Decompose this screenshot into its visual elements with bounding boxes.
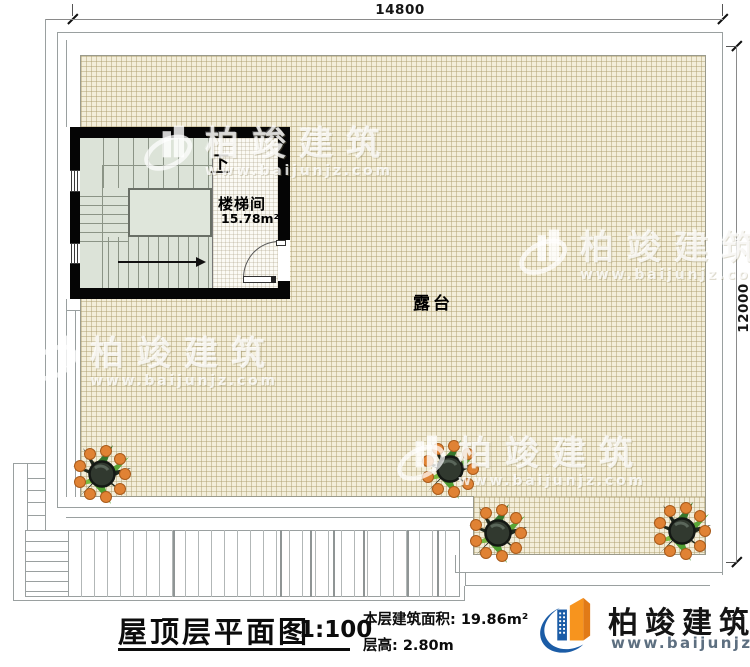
floor-area-text: 本层建筑面积: 19.86m²: [363, 608, 528, 629]
plan-line: [81, 530, 82, 597]
plan-line: [380, 530, 381, 597]
plan-line: [27, 463, 28, 530]
plan-line: [185, 530, 186, 597]
window-frame-line: [74, 244, 75, 263]
plan-line: [27, 515, 45, 516]
title-underline: [118, 648, 350, 651]
plan-line: [437, 530, 439, 597]
plan-line: [108, 237, 109, 288]
plan-line: [465, 585, 710, 586]
plan-line: [455, 555, 456, 573]
plan-line: [68, 530, 69, 597]
window-frame-line: [77, 244, 78, 263]
plan-line: [726, 562, 738, 563]
drawing-title: 屋顶层平面图: [118, 609, 310, 651]
potted-plant: [650, 498, 714, 562]
plan-line: [178, 138, 179, 188]
plan-line: [25, 541, 68, 542]
plan-line: [146, 530, 147, 597]
plan-line: [363, 530, 365, 597]
plan-line: [25, 530, 460, 531]
plan-line: [208, 237, 209, 288]
plan-line: [419, 530, 420, 597]
plan-line: [208, 138, 209, 188]
stair-direction-arrow: [196, 257, 206, 267]
plan-line: [310, 530, 312, 597]
plan-line: [393, 530, 394, 597]
plan-line: [173, 530, 175, 597]
plan-line: [133, 138, 134, 188]
plan-line: [45, 19, 723, 20]
drawing-scale: 1:100: [299, 617, 372, 643]
plan-line: [302, 530, 303, 597]
plan-line: [25, 561, 68, 562]
window: [70, 243, 80, 264]
plan-line: [57, 507, 473, 508]
dimension-line-right: [736, 46, 737, 563]
potted-plant: [418, 436, 482, 500]
plan-line: [159, 530, 160, 597]
plan-line: [94, 530, 95, 597]
plan-line: [102, 165, 212, 166]
plan-line: [722, 32, 723, 575]
door-frame: [276, 240, 286, 246]
plan-line: [118, 138, 119, 188]
plan-line: [289, 530, 290, 597]
plan-line: [25, 596, 460, 597]
plan-line: [354, 530, 355, 597]
plan-line: [333, 530, 335, 597]
stairwell: 下楼梯间15.78m²: [70, 127, 290, 299]
brand-website-text: www.baijunjz.com: [611, 634, 750, 652]
plan-line: [133, 530, 134, 597]
plan-line: [13, 463, 14, 601]
plan-line: [80, 496, 474, 497]
plan-line: [25, 581, 68, 582]
plan-line: [66, 299, 67, 497]
plan-line: [455, 572, 723, 573]
window-frame-line: [74, 171, 75, 191]
plan-line: [66, 517, 473, 518]
stair-direction-label: 下: [212, 148, 229, 173]
dimension-top-label: 14800: [370, 2, 430, 18]
brand-logo-icon: [534, 596, 596, 654]
plan-line: [103, 138, 104, 188]
plan-line: [13, 600, 465, 601]
plan-line: [27, 490, 45, 491]
plan-line: [722, 4, 723, 16]
plan-line: [80, 232, 128, 233]
plan-line: [25, 591, 68, 592]
plan-line: [107, 530, 108, 597]
plan-line: [118, 261, 196, 263]
plan-line: [45, 19, 46, 463]
plan-line: [263, 530, 264, 597]
plan-line: [57, 32, 723, 33]
potted-plant: [466, 500, 530, 564]
stairwell-area-label: 15.78m²: [221, 211, 279, 226]
stair-landing: [128, 188, 212, 237]
plan-line: [80, 196, 128, 197]
plan-line: [102, 165, 103, 288]
plan-line: [80, 214, 128, 215]
plan-line: [445, 530, 446, 597]
window-frame-line: [71, 244, 72, 263]
plan-line: [120, 530, 121, 597]
plan-line: [80, 241, 128, 242]
plan-line: [328, 530, 329, 597]
plan-line: [72, 4, 73, 16]
floor-plan-canvas: 14800 12000 露台 下楼梯间15.78m²: [0, 0, 750, 667]
plan-line: [276, 530, 277, 597]
plan-line: [163, 138, 164, 188]
plan-line: [66, 40, 67, 127]
plan-line: [25, 551, 68, 552]
door-hinge: [271, 276, 276, 283]
floor-height-text: 层高: 2.80m: [363, 634, 454, 655]
plan-line: [57, 32, 58, 508]
plan-line: [193, 138, 194, 188]
plan-line: [211, 530, 212, 597]
plan-line: [224, 530, 225, 597]
plan-line: [367, 530, 368, 597]
plan-line: [432, 530, 433, 597]
plan-line: [80, 223, 128, 224]
plan-line: [13, 463, 45, 464]
plan-line: [250, 530, 251, 597]
window-frame-line: [77, 171, 78, 191]
plan-line: [27, 478, 45, 479]
plan-line: [237, 530, 238, 597]
potted-plant: [70, 441, 134, 505]
plan-line: [726, 46, 738, 47]
plan-line: [407, 530, 409, 597]
window: [70, 170, 80, 192]
plan-line: [341, 530, 342, 597]
door-opening: [278, 240, 290, 281]
plan-line: [27, 502, 45, 503]
plan-line: [66, 310, 80, 311]
plan-line: [25, 571, 68, 572]
plan-line: [198, 530, 199, 597]
plan-line: [148, 138, 149, 188]
dimension-right-label: 12000: [736, 278, 750, 338]
stair-direction-leader: [210, 171, 230, 173]
plan-line: [315, 530, 316, 597]
plan-line: [45, 463, 46, 530]
plan-line: [464, 586, 465, 600]
plan-line: [80, 205, 128, 206]
plan-line: [280, 530, 282, 597]
terrace-label: 露台: [413, 289, 453, 314]
plan-line: [459, 530, 460, 597]
window-frame-line: [71, 171, 72, 191]
